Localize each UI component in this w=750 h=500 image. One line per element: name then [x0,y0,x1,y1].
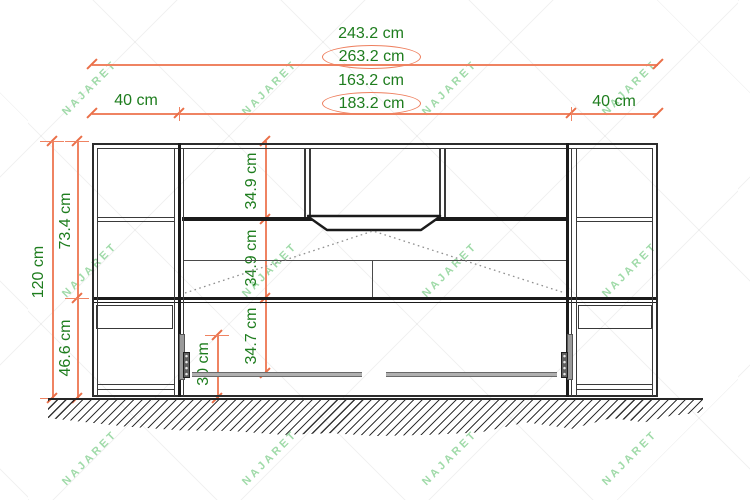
ground-line [48,398,703,400]
flap-opening-indicator [185,231,565,293]
flap-handle-notch [308,216,440,230]
wall-bed-technical-drawing: NAJARET NAJARET NAJARET NAJARET NAJARET … [0,0,750,500]
